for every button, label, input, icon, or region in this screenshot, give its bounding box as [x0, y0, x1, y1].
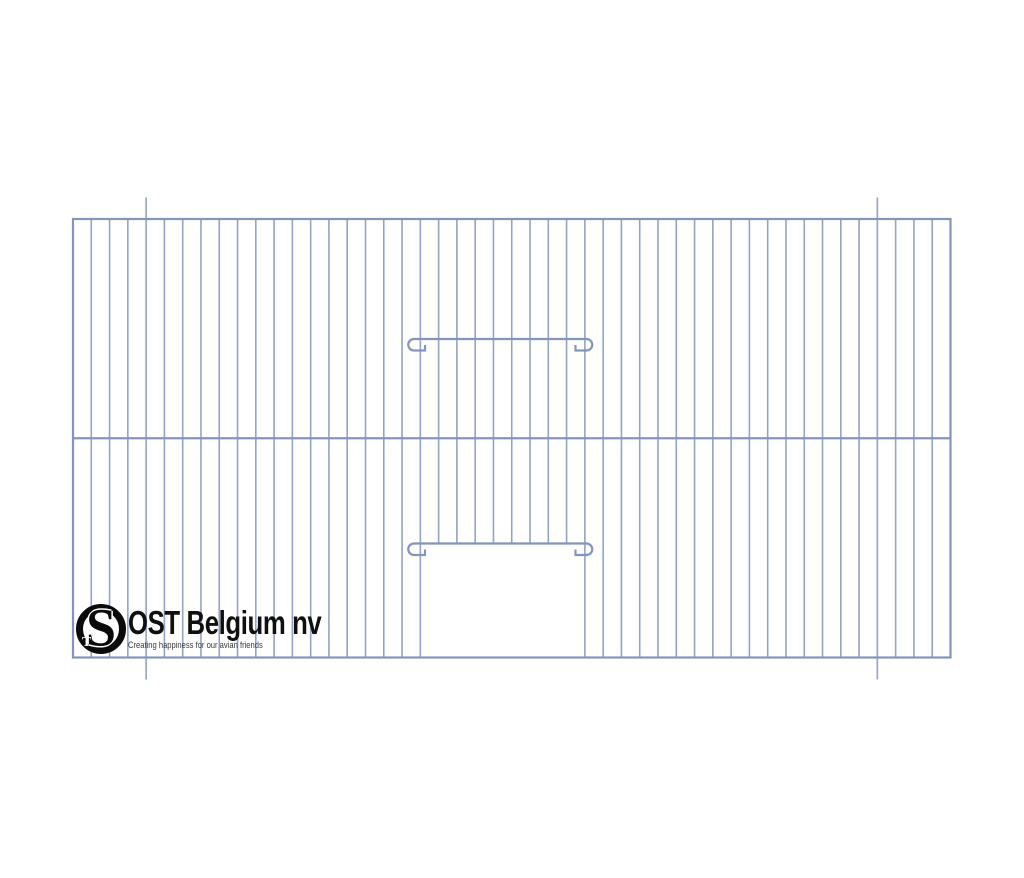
ost-monogram-icon: S T — [76, 604, 126, 654]
brand-tagline: Creating happiness for our avian friends — [128, 640, 326, 651]
monogram-letter-t: T — [82, 636, 91, 650]
drawing-canvas: S T OST Belgium nv Creating happiness fo… — [0, 0, 1024, 878]
company-logo: S T OST Belgium nv Creating happiness fo… — [76, 604, 376, 654]
logo-text: OST Belgium nv Creating happiness for ou… — [128, 607, 376, 651]
cage-front-diagram — [0, 0, 1024, 878]
brand-name: OST Belgium nv — [128, 607, 321, 639]
door-slide-bar-top — [408, 339, 592, 351]
door-slide-bar-bottom — [408, 544, 592, 556]
